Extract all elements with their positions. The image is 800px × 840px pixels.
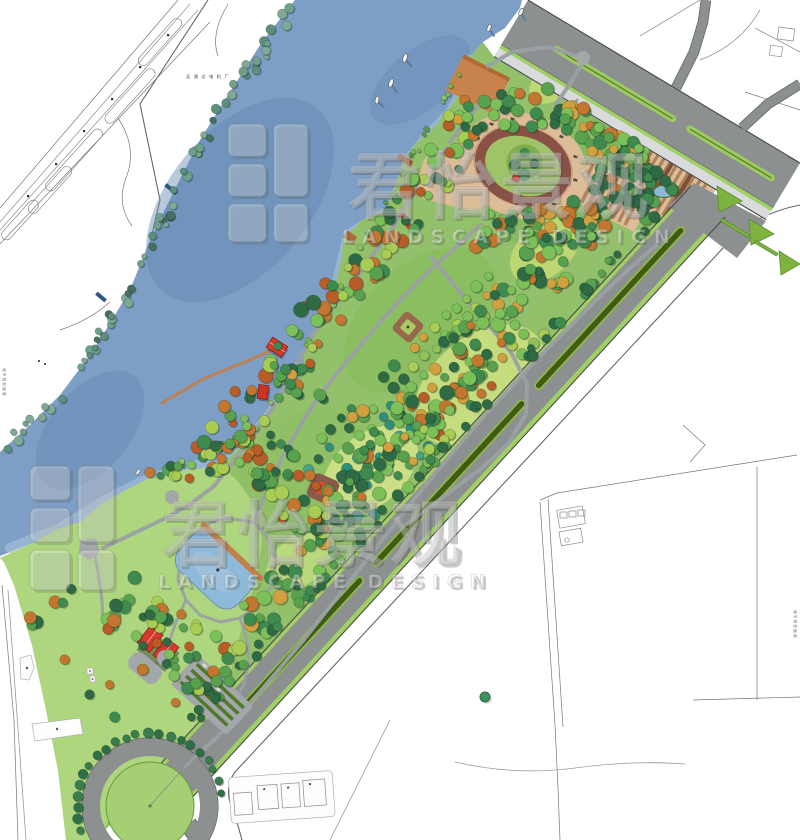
master-plan-canvas: 吴通达电机厂 城市规划道路 [0,0,800,840]
watermark-en: LANDSCAPE DESIGN [342,226,677,248]
watermark-cn: 君怡景观 [348,145,652,229]
landscape-master-plan: 吴通达电机厂 城市规划道路 [0,0,800,840]
cad-building-cluster-south [228,770,335,823]
watermark-en: LANDSCAPE DESIGN [158,571,493,593]
watermark-cn: 君怡景观 [162,493,466,577]
road-label-left: 城市规划道路 [2,368,7,397]
factory-label: 吴通达电机厂 [186,73,232,80]
road-label-right: 城市规划道路 [793,610,798,639]
single-tree [480,692,490,702]
